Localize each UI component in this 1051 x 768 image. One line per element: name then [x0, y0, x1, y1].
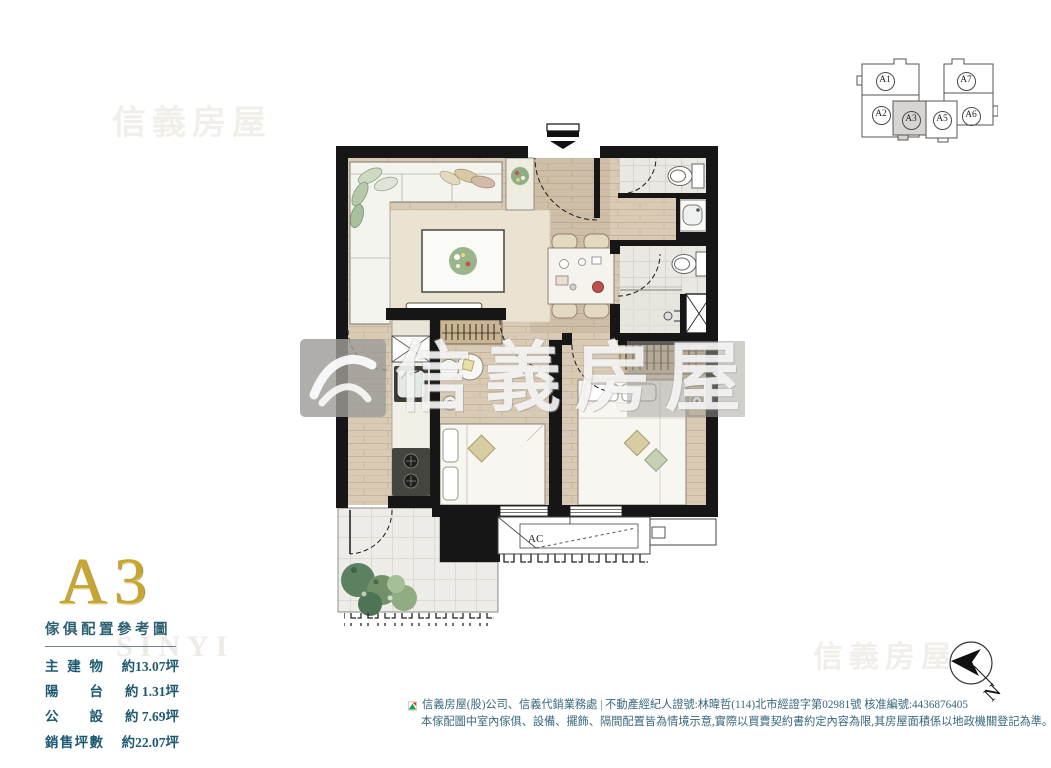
- ac-label: AC: [528, 533, 543, 545]
- footer-line1: 信義房屋(股)公司、信義代銷業務處 | 不動產經紀人證號:林暐哲(114)北市經…: [408, 698, 968, 713]
- entry-marker: [547, 124, 579, 149]
- area-value: 約22.07坪: [122, 731, 179, 751]
- sinyi-logo-icon: [408, 699, 417, 713]
- unit-badge-a6: A6: [962, 107, 981, 126]
- compass: N: [944, 636, 1008, 708]
- balcony-railing-hatch: [344, 613, 494, 626]
- unit-info-block: A3 傢俱配置參考圖 主建物 約13.07坪 陽台 約 1.31坪 公設 約 7…: [45, 550, 225, 756]
- toilet-bath1: [668, 164, 704, 188]
- side-platform: [650, 519, 716, 545]
- nightstand: [688, 386, 706, 416]
- pillow: [443, 467, 458, 500]
- toilet-bath2: [672, 252, 708, 276]
- building-key-plan: A1 A7 A2 A3 A5 A6: [852, 55, 998, 147]
- stove: [392, 448, 430, 496]
- compass-north-label: N: [980, 680, 1006, 706]
- area-row-total: 銷售坪數 約22.07坪: [45, 731, 179, 751]
- area-row-balcony: 陽台 約 1.31坪: [45, 680, 179, 700]
- unit-badge-a5: A5: [933, 111, 952, 130]
- wardrobe-bedroom2: [620, 340, 706, 374]
- entry-door-leaf: [594, 158, 600, 218]
- unit-name: A3: [59, 550, 225, 614]
- key-plan-outline: [852, 55, 998, 147]
- keyplan-tab-a3: [898, 135, 908, 140]
- area-label: 主建物: [45, 655, 103, 675]
- unit-badge-a2: A2: [872, 106, 891, 125]
- divider-line: [45, 646, 176, 647]
- shower-area: [620, 287, 682, 333]
- area-label: 銷售坪數: [45, 731, 103, 751]
- ac-railing-hatch: [502, 554, 648, 567]
- area-label: 陽台: [45, 680, 103, 700]
- area-value: 約 1.31坪: [125, 680, 179, 700]
- pillow: [622, 384, 656, 401]
- area-row-public: 公設 約 7.69坪: [45, 705, 179, 725]
- footer-license-text: 信義房屋(股)公司、信義代銷業務處 | 不動產經紀人證號:林暐哲(114)北市經…: [422, 698, 968, 713]
- watermark-bottom-right: 信義房屋: [813, 632, 957, 676]
- keyplan-tab-left: [857, 76, 862, 85]
- area-label: 公設: [45, 705, 103, 725]
- floor-plan: AC: [330, 118, 722, 633]
- keyplan-tab-right: [993, 106, 998, 116]
- ac-platform: AC: [498, 517, 650, 554]
- compass-needle: [951, 649, 981, 676]
- vanity-sink: [680, 200, 706, 231]
- bed1: [440, 424, 545, 505]
- entry-console: [506, 158, 534, 210]
- unit-badge-a1: A1: [876, 72, 895, 91]
- area-value: 約13.07坪: [122, 655, 179, 675]
- bed2: [578, 380, 686, 505]
- stool: [443, 396, 457, 410]
- area-table: 主建物 約13.07坪 陽台 約 1.31坪 公設 約 7.69坪 銷售坪數 約…: [45, 655, 179, 751]
- unit-badge-a3: A3: [902, 111, 921, 130]
- area-row-main-building: 主建物 約13.07坪: [45, 655, 179, 675]
- unit-subtitle: 傢俱配置參考圖: [45, 618, 225, 639]
- closet-bedroom1: [440, 320, 502, 344]
- area-value: 約 7.69坪: [125, 705, 179, 725]
- pillow: [443, 429, 458, 462]
- dressing-chair: [440, 360, 459, 379]
- dining-table: [548, 248, 614, 304]
- watermark-top-left: 信義房屋: [112, 95, 272, 144]
- kitchen-sink: [394, 366, 428, 402]
- unit-badge-a7: A7: [957, 72, 976, 91]
- coffee-table: [422, 230, 504, 292]
- keyplan-tab-a5: [938, 138, 948, 142]
- footer: 信義房屋(股)公司、信義代銷業務處 | 不動產經紀人證號:林暐哲(114)北市經…: [408, 698, 968, 730]
- footer-disclaimer-text: 本傢配圖中室內傢俱、設備、擺飾、隔間配置皆為情境示意,實際以買賣契約書約定內容為…: [408, 715, 968, 730]
